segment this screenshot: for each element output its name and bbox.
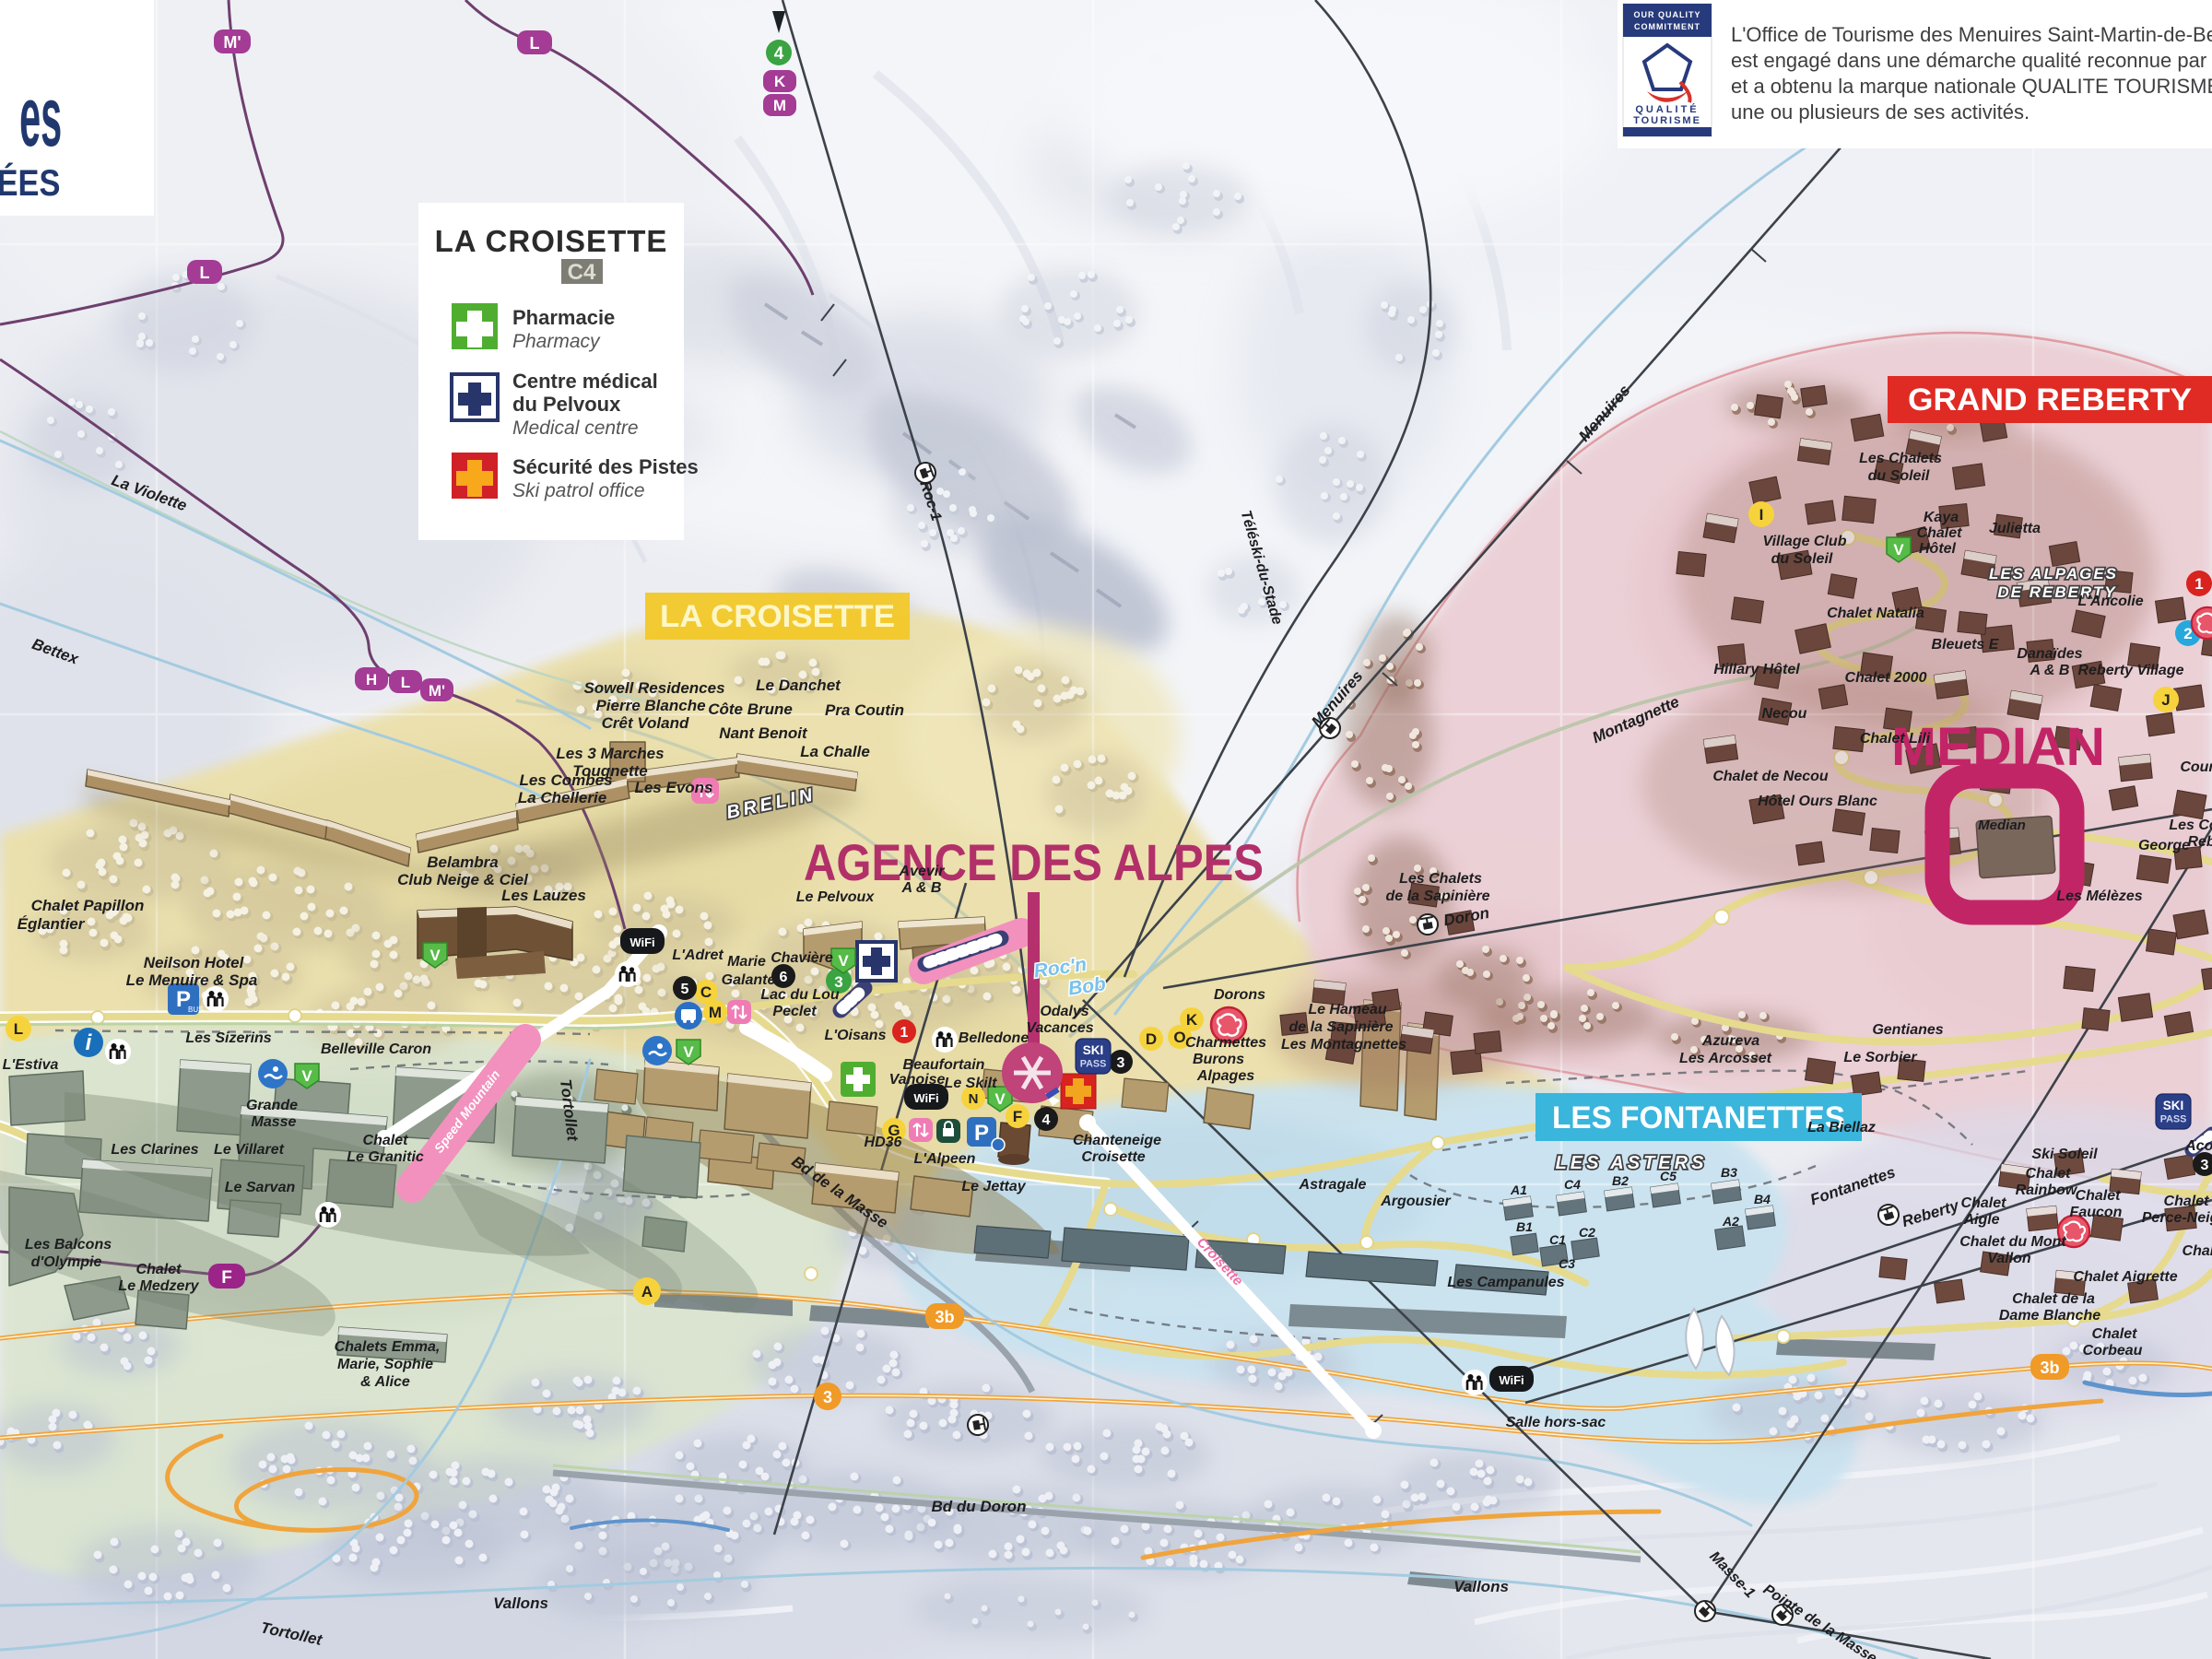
svg-text:Odalys: Odalys [1040,1004,1088,1019]
svg-text:M': M' [429,682,445,700]
svg-text:Les Combes: Les Combes [519,771,612,789]
svg-text:Les Arcosset: Les Arcosset [1679,1051,1772,1066]
svg-text:Beaufortain: Beaufortain [903,1057,985,1073]
svg-text:Peclet: Peclet [772,1004,817,1019]
svg-text:Aigle: Aigle [1962,1212,1999,1228]
svg-text:Chalet 2000: Chalet 2000 [1845,670,1927,686]
svg-text:Village Club: Village Club [1763,534,1847,549]
svg-text:Gentianes: Gentianes [1872,1022,1943,1038]
svg-text:La Challe: La Challe [800,743,870,760]
svg-text:L'Alpeen: L'Alpeen [914,1151,976,1167]
svg-text:Lac du Lou: Lac du Lou [760,987,840,1003]
svg-text:Crêt Voland: Crêt Voland [602,714,689,732]
svg-text:Chalet de Necou: Chalet de Necou [1712,769,1829,784]
svg-text:Vallon: Vallon [1987,1251,2031,1266]
svg-text:Chalet: Chalet [2092,1326,2138,1342]
svg-text:Burons: Burons [1193,1052,1244,1067]
svg-text:A & B: A & B [901,880,942,896]
svg-text:George: George [2138,838,2190,853]
svg-text:Le Pelvoux: Le Pelvoux [796,889,876,905]
svg-text:C: C [700,983,712,1001]
svg-text:4: 4 [1042,1112,1051,1128]
svg-text:3: 3 [1117,1055,1125,1071]
svg-text:Chalet Papillon: Chalet Papillon [31,897,145,914]
svg-text:du Soleil: du Soleil [1868,468,1930,484]
svg-text:Ski patrol office: Ski patrol office [512,480,645,501]
svg-text:Aconit: Aconit [2184,1138,2212,1154]
svg-text:O: O [1173,1029,1185,1046]
svg-text:Ski Soleil: Ski Soleil [2031,1147,2098,1162]
svg-text:Les Montagnettes: Les Montagnettes [1281,1037,1406,1053]
svg-text:L: L [401,674,410,691]
svg-text:Chalets Emma,: Chalets Emma, [335,1339,441,1355]
svg-text:Les Lauzes: Les Lauzes [501,887,586,904]
svg-text:Charmettes: Charmettes [1185,1035,1266,1051]
svg-text:2: 2 [2183,625,2192,642]
svg-text:et a obtenu la marque national: et a obtenu la marque nationale QUALITE … [1731,75,2212,98]
svg-text:du Soleil: du Soleil [1771,551,1833,567]
svg-text:Hillary Hôtel: Hillary Hôtel [1713,662,1800,677]
svg-text:Rebe: Rebe [2187,834,2212,850]
svg-text:COMMITMENT: COMMITMENT [1634,22,1700,31]
svg-text:1: 1 [900,1025,909,1041]
svg-text:de la Sapinière: de la Sapinière [1289,1019,1394,1035]
svg-text:du Pelvoux: du Pelvoux [512,393,621,416]
svg-text:Dorons: Dorons [1214,987,1265,1003]
svg-text:L'Ancolie: L'Ancolie [2077,594,2143,609]
svg-text:Masse: Masse [252,1114,297,1130]
svg-text:Pra Coutin: Pra Coutin [825,701,904,719]
svg-text:Bleuets E: Bleuets E [1932,637,2000,653]
svg-text:Les Evons: Les Evons [634,779,712,796]
svg-text:Belledone: Belledone [959,1030,1030,1046]
svg-text:Reberty Village: Reberty Village [2077,663,2183,678]
svg-text:A: A [641,1283,653,1300]
svg-text:A & B: A & B [2030,663,2070,678]
svg-text:Chalet Natalia: Chalet Natalia [1827,606,1924,621]
svg-text:L'Office de Tourisme des Menui: L'Office de Tourisme des Menuires Saint-… [1731,23,2212,46]
svg-text:L'Estiva: L'Estiva [3,1057,59,1073]
svg-text:Côte Brune: Côte Brune [708,700,793,718]
svg-text:K: K [1186,1011,1198,1029]
svg-text:Les Chalets: Les Chalets [1399,871,1482,887]
svg-text:Chalet: Chalet [363,1133,409,1148]
svg-text:LA CROISETTE: LA CROISETTE [660,599,895,634]
svg-text:Le Sarvan: Le Sarvan [225,1180,296,1195]
svg-text:Corbeau: Corbeau [2083,1343,2143,1359]
svg-text:Avevir: Avevir [899,864,946,879]
svg-text:Le Hameau: Le Hameau [1308,1002,1387,1018]
svg-text:Kaya: Kaya [1924,510,1959,525]
svg-text:A1: A1 [1510,1182,1527,1197]
svg-text:La Chellerie: La Chellerie [518,789,606,806]
svg-text:Hôtel: Hôtel [1919,541,1957,557]
svg-text:F: F [221,1268,232,1288]
svg-text:Les Sizerins: Les Sizerins [185,1030,271,1046]
svg-text:Dame Blanche: Dame Blanche [1999,1308,2100,1324]
svg-text:Chalet: Chalet [2164,1194,2210,1209]
svg-text:Salle hors-sac: Salle hors-sac [1506,1415,1606,1430]
svg-text:LES ALPAGES: LES ALPAGES [1989,565,2118,582]
svg-text:C2: C2 [1579,1225,1595,1240]
svg-text:C1: C1 [1549,1232,1566,1247]
svg-text:Chavière: Chavière [771,950,833,966]
svg-text:M': M' [223,33,241,52]
svg-text:3: 3 [823,1388,832,1406]
svg-text:C5: C5 [1660,1169,1677,1183]
svg-text:Croisette: Croisette [1081,1149,1145,1165]
svg-text:Chalet: Chalet [136,1262,182,1277]
svg-text:Vacances: Vacances [1026,1020,1093,1036]
svg-text:BUS: BUS [188,1006,203,1014]
svg-text:Azureva: Azureva [1701,1033,1759,1049]
svg-text:L'Oisans: L'Oisans [825,1028,887,1043]
svg-text:Nant Benoit: Nant Benoit [719,724,808,742]
svg-text:C4: C4 [1564,1177,1581,1192]
svg-text:Chalet Lili: Chalet Lili [1860,731,1931,747]
svg-text:M: M [773,97,786,114]
svg-text:AGENCE DES ALPES: AGENCE DES ALPES [804,833,1264,891]
svg-text:Chanteneige: Chanteneige [1073,1133,1161,1148]
svg-text:3: 3 [2201,1158,2209,1173]
svg-text:Chalet de la: Chalet de la [2012,1291,2095,1307]
svg-text:3b: 3b [2040,1359,2059,1377]
svg-text:Vallons: Vallons [493,1594,548,1612]
svg-text:Églantier: Églantier [18,915,86,933]
svg-text:es: es [19,69,62,164]
svg-text:Le Danchet: Le Danchet [756,677,841,694]
svg-text:B2: B2 [1612,1173,1629,1188]
svg-text:Les Campanules: Les Campanules [1447,1275,1564,1290]
svg-text:I: I [1759,506,1764,524]
svg-text:Chalet du Mont: Chalet du Mont [1959,1234,2066,1250]
svg-text:C4: C4 [568,260,596,285]
svg-text:B1: B1 [1516,1219,1533,1234]
svg-text:1: 1 [2194,575,2203,593]
svg-text:Marie, Sophie: Marie, Sophie [337,1357,433,1372]
svg-text:B4: B4 [1754,1192,1771,1206]
svg-text:Le Skilt: Le Skilt [945,1076,998,1091]
svg-text:5: 5 [681,982,689,997]
svg-text:Necou: Necou [1762,706,1807,722]
svg-text:M: M [709,1004,722,1021]
svg-text:Les 3 Marches: Les 3 Marches [556,745,664,762]
svg-text:N: N [969,1091,979,1107]
svg-text:Medical centre: Medical centre [512,418,639,439]
svg-text:Argousier: Argousier [1380,1194,1451,1209]
svg-text:Vanoise: Vanoise [889,1072,946,1088]
svg-text:HD36: HD36 [865,1135,902,1150]
svg-text:Julietta: Julietta [1989,521,2041,536]
svg-text:LES ASTERS: LES ASTERS [1556,1153,1708,1173]
svg-text:L: L [530,34,540,53]
svg-text:LES FONTANETTES: LES FONTANETTES [1552,1100,1845,1135]
svg-text:Les Cour: Les Cour [2169,818,2212,833]
svg-text:Neilson Hotel: Neilson Hotel [144,954,245,971]
svg-text:Chalet: Chalet [1961,1195,2007,1211]
svg-text:Danaïdes: Danaïdes [2017,646,2082,662]
svg-text:Le Sorbier: Le Sorbier [1843,1050,1917,1065]
svg-text:C3: C3 [1559,1256,1575,1271]
svg-text:3b: 3b [935,1308,954,1326]
svg-text:4: 4 [774,44,784,64]
svg-text:ÉES: ÉES [0,162,60,204]
svg-text:Les Balcons: Les Balcons [25,1237,112,1253]
svg-text:Chalet: Chalet [2026,1166,2072,1182]
svg-text:Les Chalets: Les Chalets [1859,451,1942,466]
svg-text:Grande: Grande [246,1098,298,1113]
svg-text:La Biellaz: La Biellaz [1807,1120,1876,1135]
svg-text:Le Jettay: Le Jettay [961,1179,1026,1194]
svg-text:Galante: Galante [722,972,776,988]
svg-text:Les Clarines: Les Clarines [111,1142,198,1158]
svg-text:L: L [200,264,210,282]
svg-text:L: L [14,1020,23,1038]
svg-text:Rainbow: Rainbow [2016,1182,2078,1198]
svg-text:Faucon: Faucon [2070,1205,2123,1220]
svg-text:D: D [1146,1030,1157,1048]
svg-text:Pharmacy: Pharmacy [512,331,601,352]
svg-text:Pharmacie: Pharmacie [512,306,615,329]
svg-text:Sowell Residences: Sowell Residences [583,679,724,697]
svg-text:est engagé dans une démarche q: est engagé dans une démarche qualité rec… [1731,49,2212,72]
svg-text:Alpages: Alpages [1196,1068,1254,1084]
svg-text:de la Sapinière: de la Sapinière [1386,888,1490,904]
svg-text:QUALITÉ: QUALITÉ [1635,103,1699,115]
svg-text:GRAND REBERTY: GRAND REBERTY [1908,382,2192,418]
svg-text:Le Granitic: Le Granitic [347,1149,424,1165]
svg-text:Perce-Neige: Perce-Neige [2142,1210,2212,1226]
svg-text:Marie: Marie [727,954,766,970]
svg-text:L'Adret: L'Adret [672,947,724,963]
svg-text:Pierre Blanche: Pierre Blanche [595,697,705,714]
svg-text:Median: Median [1978,818,2026,833]
svg-text:LA CROISETTE: LA CROISETTE [435,224,668,258]
svg-text:TOURISME: TOURISME [1633,115,1701,126]
svg-text:Vallons: Vallons [1453,1578,1509,1595]
svg-text:d'Olympie: d'Olympie [31,1254,102,1270]
svg-text:J: J [2161,691,2170,709]
svg-text:Cour: Cour [2180,759,2212,775]
svg-text:OUR QUALITY: OUR QUALITY [1634,10,1701,19]
svg-text:& Alice: & Alice [360,1374,410,1390]
svg-text:H: H [366,671,377,688]
svg-text:Chalet: Chalet [2076,1188,2122,1204]
svg-text:Le Menuire & Spa: Le Menuire & Spa [126,971,258,989]
svg-text:Centre médical: Centre médical [512,370,658,393]
svg-text:6: 6 [780,970,788,985]
svg-text:Bd du Doron: Bd du Doron [932,1498,1027,1515]
svg-text:une ou plusieurs de ses activi: une ou plusieurs de ses activités. [1731,100,2030,124]
svg-text:Chalet Aigrette: Chalet Aigrette [2073,1269,2177,1285]
svg-text:Sécurité des Pistes: Sécurité des Pistes [512,455,699,478]
svg-text:F: F [1013,1108,1022,1125]
svg-text:Chalet: Chalet [2183,1243,2212,1259]
svg-text:Hôtel Ours Blanc: Hôtel Ours Blanc [1758,794,1877,809]
svg-text:Le Medzery: Le Medzery [118,1278,199,1294]
svg-text:Chalet: Chalet [1917,525,1963,541]
svg-text:Le Villaret: Le Villaret [214,1142,285,1158]
svg-text:B3: B3 [1721,1165,1737,1180]
svg-text:Les Mélèzes: Les Mélèzes [2056,888,2142,904]
svg-text:Belleville Caron: Belleville Caron [321,1041,431,1057]
svg-text:A2: A2 [1722,1214,1739,1229]
svg-text:Astragale: Astragale [1299,1177,1367,1193]
svg-text:K: K [774,73,786,90]
svg-text:Belambra: Belambra [427,853,498,871]
